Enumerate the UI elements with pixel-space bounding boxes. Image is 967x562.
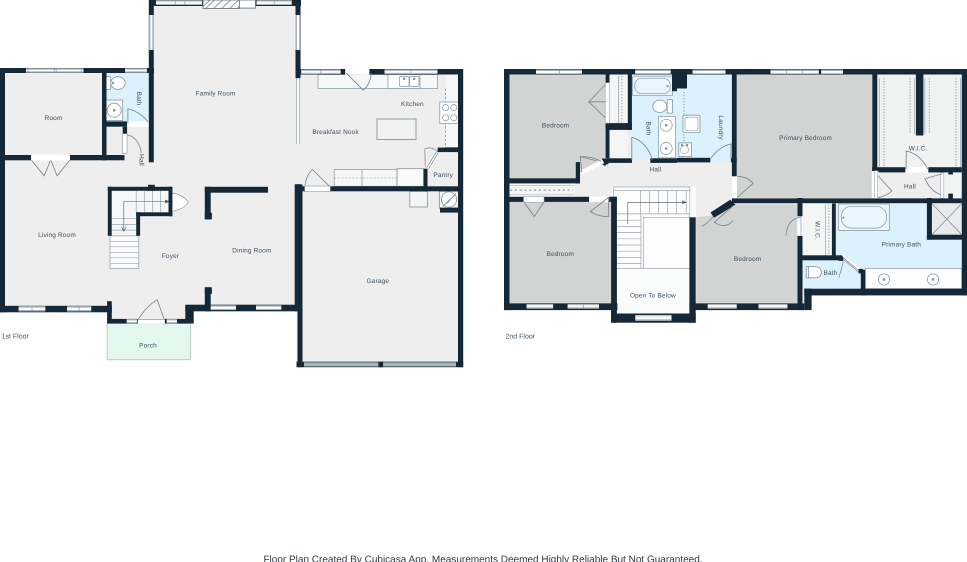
svg-text:Hall: Hall — [138, 154, 145, 166]
svg-text:1st Floor: 1st Floor — [2, 332, 30, 340]
svg-text:Hall: Hall — [904, 183, 916, 190]
svg-text:Room: Room — [45, 115, 63, 122]
svg-text:Bath: Bath — [135, 92, 142, 106]
svg-text:Porch: Porch — [139, 343, 157, 350]
svg-text:Family Room: Family Room — [196, 90, 236, 97]
svg-text:Pantry: Pantry — [433, 172, 453, 179]
svg-text:2nd Floor: 2nd Floor — [506, 332, 536, 340]
svg-text:Bedroom: Bedroom — [546, 251, 573, 258]
svg-text:Floor Plan Created By Cubicasa: Floor Plan Created By Cubicasa App. Meas… — [263, 555, 702, 562]
svg-text:Primary Bedroom: Primary Bedroom — [779, 135, 832, 142]
svg-text:Primary Bath: Primary Bath — [882, 241, 922, 248]
svg-text:Open To Below: Open To Below — [630, 293, 676, 300]
svg-text:Garage: Garage — [367, 278, 390, 285]
svg-text:W.I.C.: W.I.C. — [813, 221, 820, 240]
svg-text:Bath: Bath — [824, 270, 838, 277]
svg-text:Hall: Hall — [649, 167, 661, 174]
svg-text:Foyer: Foyer — [162, 253, 180, 260]
svg-text:Dining Room: Dining Room — [232, 247, 271, 254]
svg-text:Bath: Bath — [644, 122, 651, 136]
svg-text:Kitchen: Kitchen — [401, 101, 424, 108]
svg-text:W.I.C.: W.I.C. — [909, 146, 928, 153]
svg-text:Laundry: Laundry — [717, 115, 724, 140]
svg-text:Bedroom: Bedroom — [542, 123, 569, 130]
svg-text:Breakfast Nook: Breakfast Nook — [312, 129, 359, 136]
svg-text:Bedroom: Bedroom — [734, 256, 761, 263]
svg-text:Living Room: Living Room — [38, 232, 76, 239]
